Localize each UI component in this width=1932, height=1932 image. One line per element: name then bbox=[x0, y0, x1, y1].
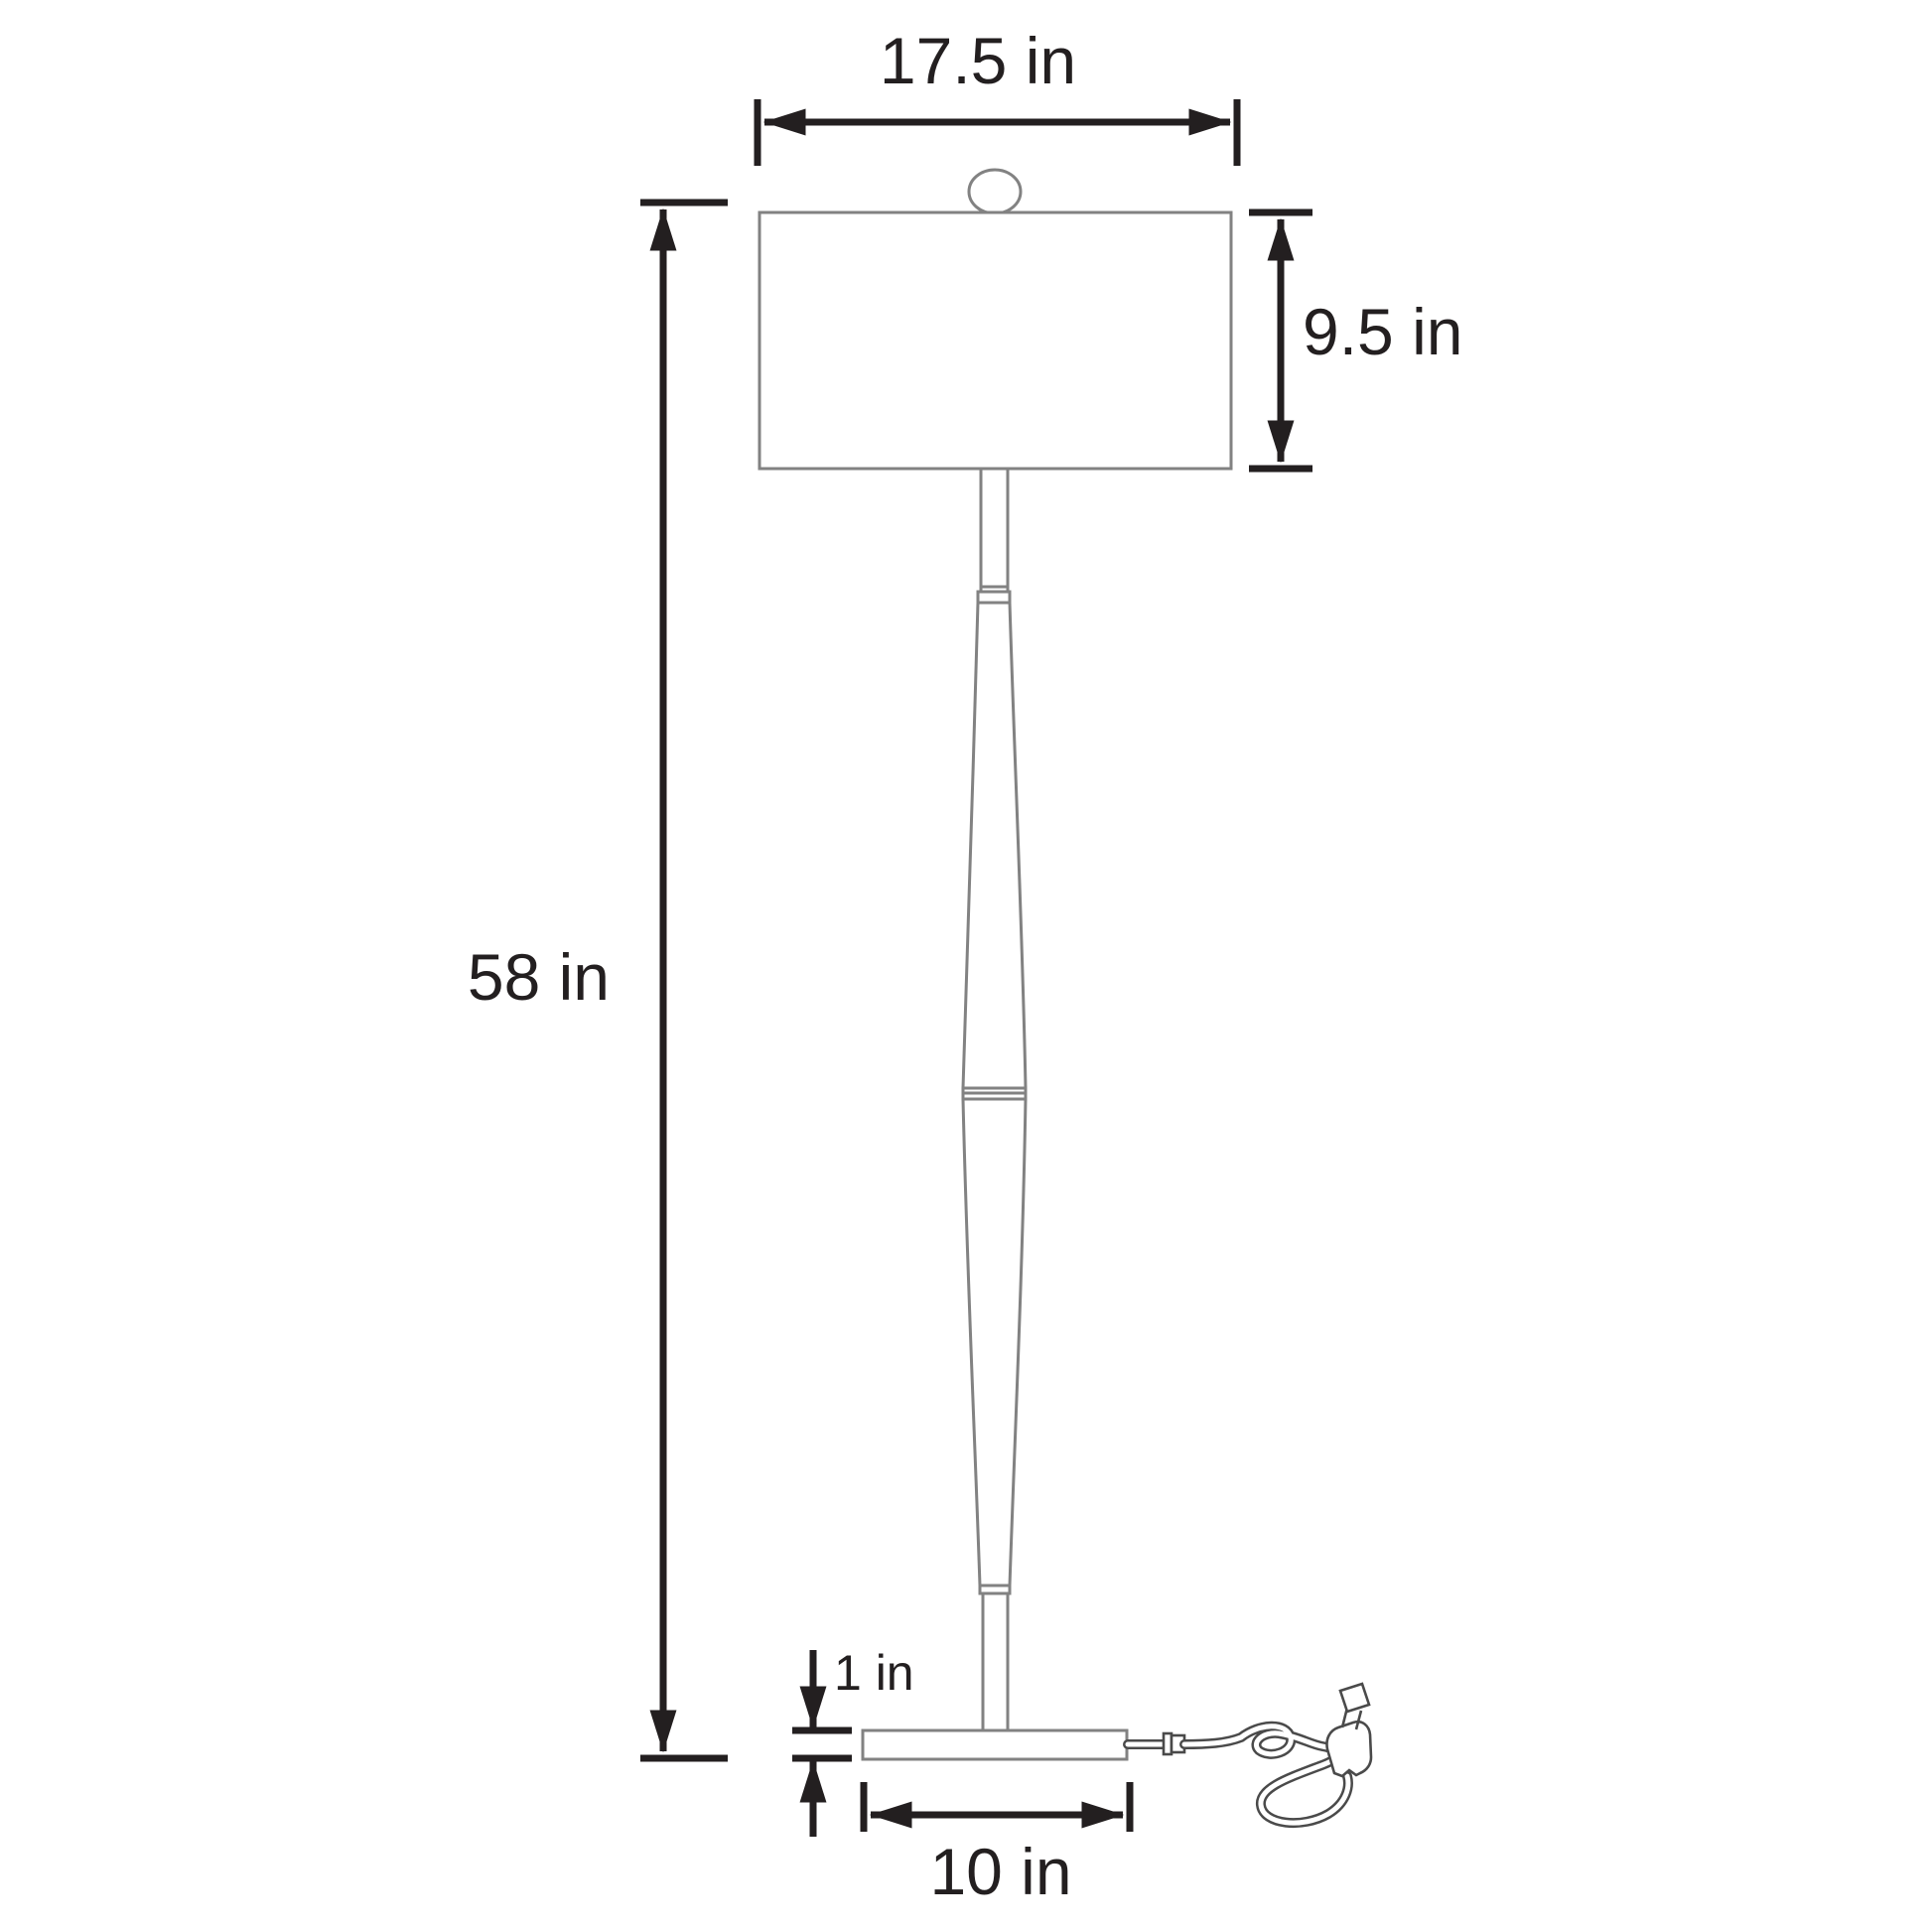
lamp-lower-spindle bbox=[963, 1099, 1026, 1586]
base-width-label: 10 in bbox=[929, 1835, 1071, 1908]
plug-cap bbox=[1340, 1684, 1369, 1712]
shade-height-label: 9.5 in bbox=[1303, 295, 1462, 368]
lamp-lower-rod bbox=[983, 1593, 1008, 1730]
shade-width-label: 17.5 in bbox=[880, 24, 1076, 97]
dim-base-width: 10 in bbox=[864, 1782, 1130, 1908]
base-height-label: 1 in bbox=[834, 1645, 914, 1701]
diagram-svg: 17.5 in 9.5 in 58 in 1 in 10 in bbox=[0, 0, 1932, 1932]
total-height-label: 58 in bbox=[468, 940, 610, 1014]
power-plug-body bbox=[1326, 1722, 1371, 1776]
lamp-finial bbox=[969, 170, 1021, 213]
power-cord-coil bbox=[1184, 1726, 1348, 1823]
lamp-drawing bbox=[759, 170, 1231, 1759]
lamp-upper-spindle bbox=[963, 603, 1026, 1088]
dim-shade-height: 9.5 in bbox=[1249, 212, 1462, 469]
lamp-shade bbox=[759, 212, 1231, 469]
dim-shade-width: 17.5 in bbox=[758, 24, 1237, 166]
cord-and-plug bbox=[1128, 1684, 1371, 1823]
dim-total-height: 58 in bbox=[468, 203, 728, 1758]
lamp-base bbox=[863, 1730, 1127, 1759]
lamp-neck bbox=[981, 469, 1008, 592]
lamp-dimension-diagram: 17.5 in 9.5 in 58 in 1 in 10 in bbox=[0, 0, 1932, 1932]
lamp-neck-joint bbox=[978, 592, 1010, 603]
